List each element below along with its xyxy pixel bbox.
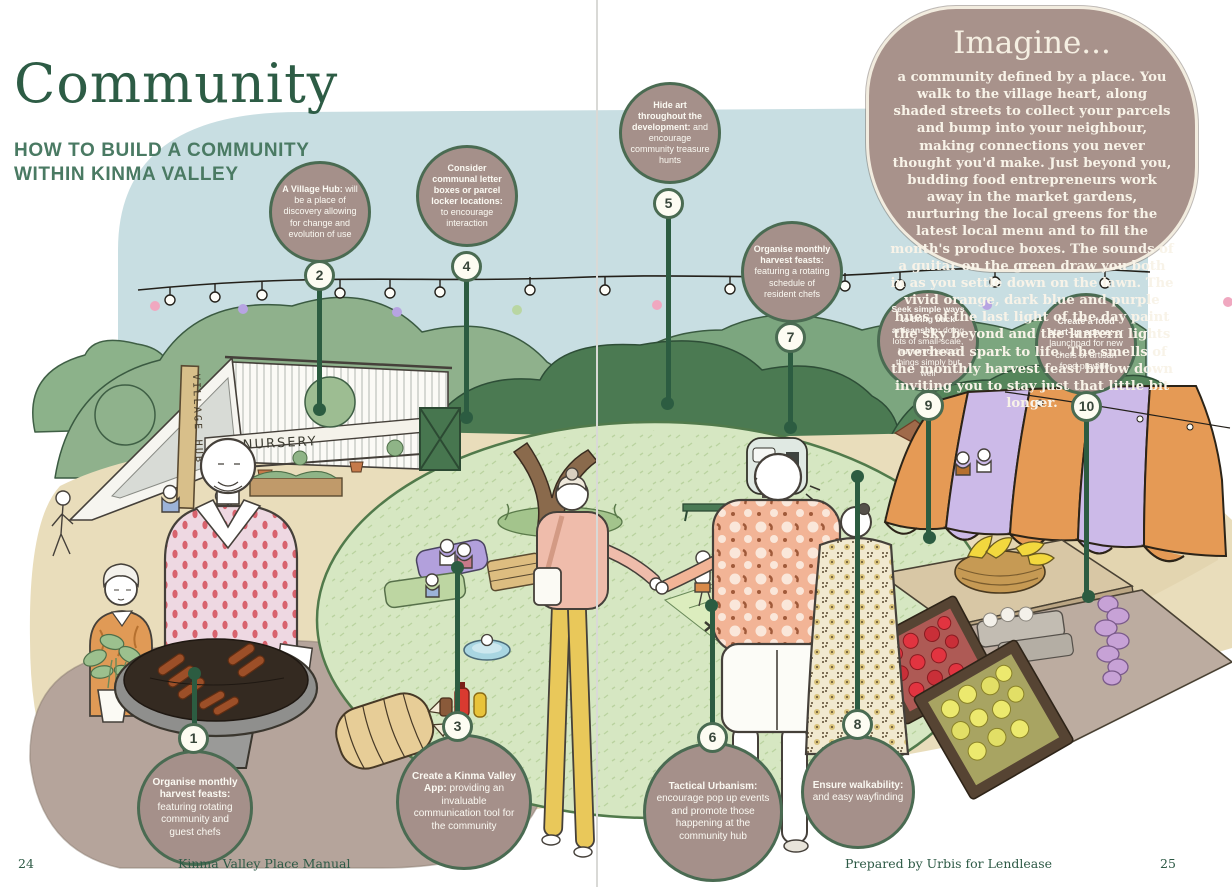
subtitle-line-2: WITHIN KINMA VALLEY: [14, 163, 338, 187]
imagine-heading: Imagine...: [953, 25, 1111, 61]
imagine-body: a community defined by a place. You walk…: [889, 69, 1175, 412]
callout-4-bubble: Consider communal letter boxes or parcel…: [416, 145, 518, 247]
callout-1-number: 1: [178, 723, 209, 754]
page-title: Community: [14, 52, 338, 115]
callout-6-leader: [710, 606, 715, 738]
callout-3-bubble: Create a Kinma Valley App: providing an …: [396, 734, 532, 870]
callout-5-number: 5: [653, 188, 684, 219]
page-header: Community HOW TO BUILD A COMMUNITY WITHI…: [14, 52, 338, 188]
callout-10-leader: [1084, 407, 1089, 597]
callout-2-leader: [317, 276, 322, 410]
callout-8-number: 8: [842, 709, 873, 740]
subtitle-line-1: HOW TO BUILD A COMMUNITY: [14, 139, 338, 163]
callout-3-number: 3: [442, 711, 473, 742]
callout-2-number: 2: [304, 260, 335, 291]
callout-6-bubble: Tactical Urbanism: encourage pop up even…: [643, 742, 783, 882]
page-number-left: 24: [18, 856, 34, 871]
page-subtitle: HOW TO BUILD A COMMUNITY WITHIN KINMA VA…: [14, 139, 338, 188]
callout-7-bubble: Organise monthly harvest feasts: featuri…: [741, 221, 843, 323]
callout-9-leader: [926, 406, 931, 538]
callout-5-leader: [666, 204, 671, 404]
page-gutter-divider: [596, 0, 598, 887]
callout-4-number: 4: [451, 251, 482, 282]
callout-4-leader: [464, 267, 469, 418]
imagine-panel: Imagine... a community defined by a plac…: [866, 6, 1198, 272]
manual-title: Kinma Valley Place Manual: [178, 856, 350, 871]
callout-7-number: 7: [775, 322, 806, 353]
callout-1-bubble: Organise monthly harvest feasts: featuri…: [137, 750, 253, 866]
callout-5-bubble: Hide art throughout the development: and…: [619, 82, 721, 184]
callout-8-bubble: Ensure walkability: and easy wayfinding: [801, 735, 915, 849]
page-number-right: 25: [1160, 856, 1176, 871]
prepared-by: Prepared by Urbis for Lendlease: [845, 856, 1052, 871]
callout-8-leader: [855, 477, 860, 725]
callout-6-number: 6: [697, 722, 728, 753]
callout-3-leader: [455, 568, 460, 727]
manual-spread-page: VILLAGE HUB NURSERY: [0, 0, 1232, 887]
